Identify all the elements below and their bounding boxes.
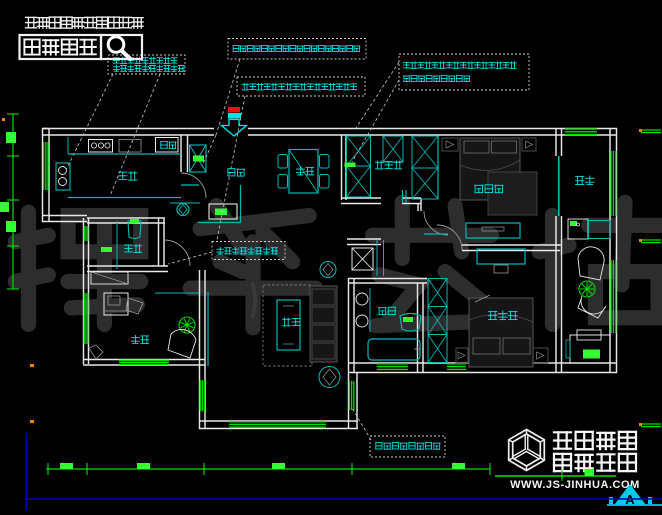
- svg-text:WWW.JS-JINHUA.COM: WWW.JS-JINHUA.COM: [510, 479, 640, 491]
